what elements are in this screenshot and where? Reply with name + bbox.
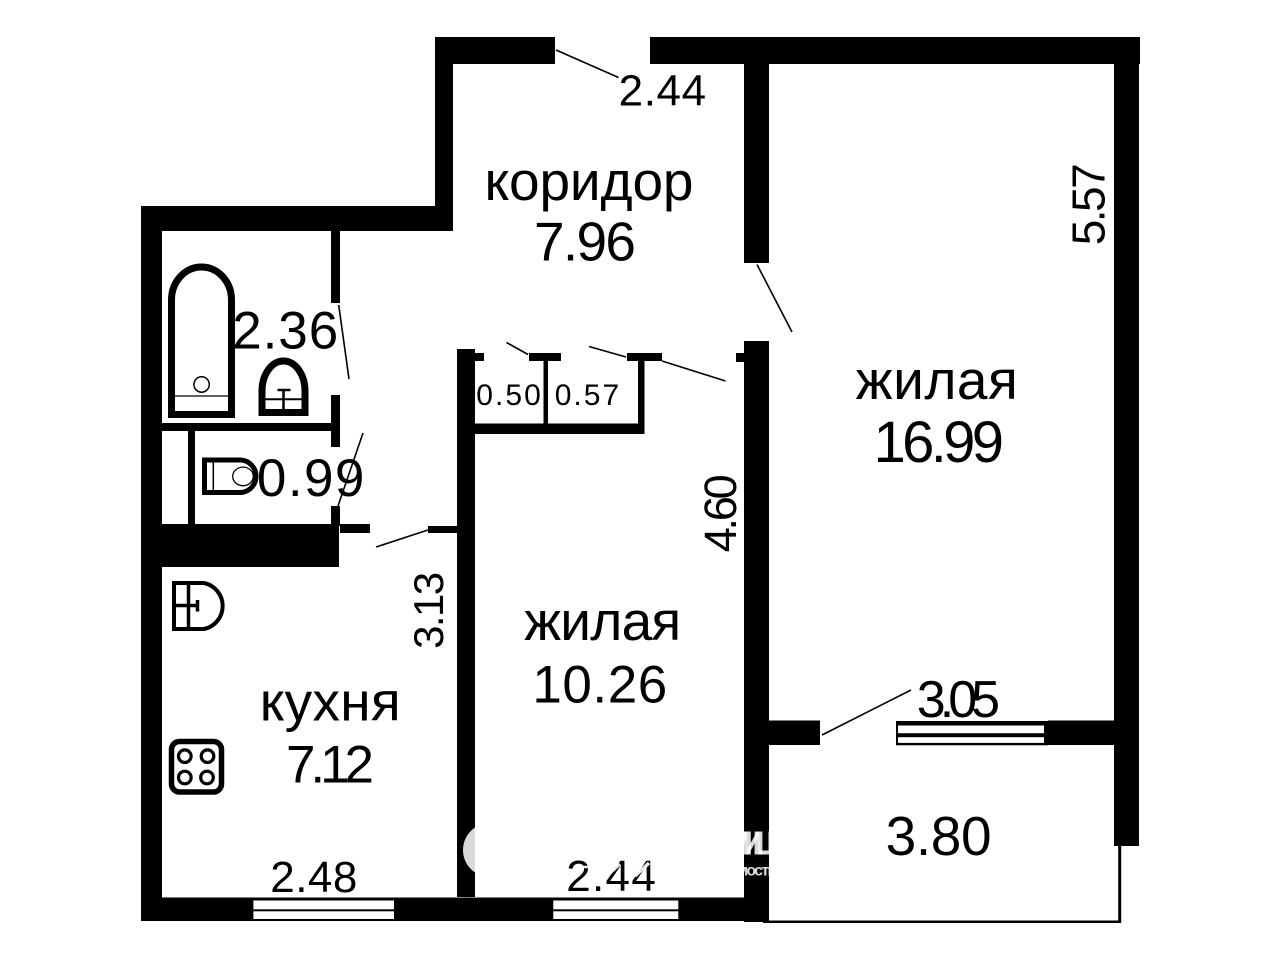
svg-text:0.50: 0.50 [476, 379, 541, 412]
svg-text:2.44: 2.44 [619, 66, 707, 115]
svg-text:недвижимость: недвижимость [679, 863, 778, 880]
svg-text:5.57: 5.57 [1063, 163, 1115, 245]
svg-text:4.60: 4.60 [695, 474, 746, 552]
svg-text:0.99: 0.99 [257, 449, 365, 508]
svg-text:жилая: жилая [856, 349, 1018, 411]
svg-text:2.44: 2.44 [566, 852, 656, 901]
svg-text:10.26: 10.26 [532, 656, 667, 715]
svg-text:3.80: 3.80 [886, 805, 992, 867]
svg-text:7.96: 7.96 [534, 211, 636, 273]
svg-text:2.36: 2.36 [232, 301, 338, 360]
svg-text:3.05: 3.05 [917, 671, 1000, 729]
svg-text:3.13: 3.13 [405, 572, 452, 649]
svg-text:жилая: жилая [524, 590, 681, 652]
svg-text:кухня: кухня [260, 671, 401, 733]
svg-text:7.12: 7.12 [286, 736, 374, 795]
svg-text:16.99: 16.99 [874, 410, 1005, 475]
svg-text:2.48: 2.48 [270, 853, 357, 902]
svg-text:0.57: 0.57 [555, 379, 620, 412]
svg-text:коридор: коридор [485, 150, 694, 212]
svg-text:МИЦ: МИЦ [726, 825, 777, 862]
